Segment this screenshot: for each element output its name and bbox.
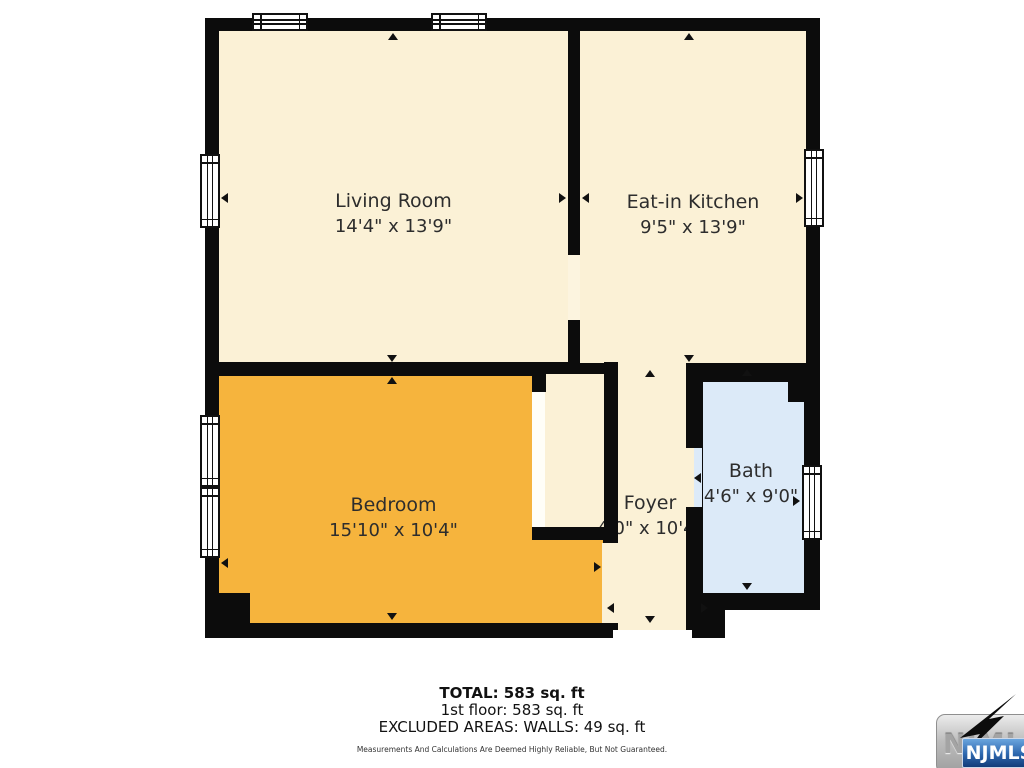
window-symbol-top-1 (252, 13, 308, 31)
foyer-entry-gap (613, 630, 692, 640)
njmls-badge-text: NJMLS (966, 742, 1024, 764)
dim-arrow-kitchen-up (684, 33, 694, 40)
dim-arrow-kitchen-right (796, 193, 803, 203)
dim-arrow-bath-left (694, 473, 701, 483)
floorplan-page: Living Room 14'4" x 13'9" Eat-in Kitchen… (0, 0, 1024, 768)
dim-arrow-foyer-down (645, 616, 655, 623)
dim-arrow-bedroom-right (594, 562, 601, 572)
kitchen-dims: 9'5" x 13'9" (580, 215, 806, 241)
closet-left-stub-wall (532, 368, 546, 392)
njmls-badge: NJMLS (962, 738, 1024, 768)
dim-arrow-living-right (559, 193, 566, 203)
living-room-dims: 14'4" x 13'9" (219, 214, 568, 240)
dim-arrow-kitchen-down (684, 355, 694, 362)
bath-name: Bath (690, 458, 812, 484)
dim-arrow-foyer-left (607, 603, 614, 613)
living-room-label: Living Room 14'4" x 13'9" (219, 188, 568, 240)
living-room-name: Living Room (219, 188, 568, 214)
excluded-areas-text: EXCLUDED AREAS: WALLS: 49 sq. ft (0, 719, 1024, 736)
dim-arrow-foyer-right (701, 603, 708, 613)
total-area-text: TOTAL: 583 sq. ft (0, 684, 1024, 702)
dim-arrow-kitchen-left (582, 193, 589, 203)
first-floor-text: 1st floor: 583 sq. ft (0, 702, 1024, 719)
window-symbol-bedroom-left-1 (200, 415, 220, 487)
dim-arrow-bath-down (742, 583, 752, 590)
window-symbol-top-2 (431, 13, 487, 31)
bath-corner-notch (788, 382, 804, 402)
bedroom-label: Bedroom 15'10" x 10'4" (219, 492, 568, 544)
bedroom-dims: 15'10" x 10'4" (219, 518, 568, 544)
window-symbol-bedroom-left-2 (200, 487, 220, 558)
disclaimer-text: Measurements And Calculations Are Deemed… (0, 745, 1024, 754)
kitchen-label: Eat-in Kitchen 9'5" x 13'9" (580, 189, 806, 241)
dim-arrow-bath-up (742, 369, 752, 376)
bedroom-name: Bedroom (219, 492, 568, 518)
closet-right-wall (604, 362, 618, 540)
dim-arrow-bedroom-up (387, 377, 397, 384)
dim-arrow-foyer-up (645, 370, 655, 377)
window-symbol-living-left (200, 154, 220, 228)
dim-arrow-bedroom-down (387, 613, 397, 620)
dim-arrow-living-down (387, 355, 397, 362)
summary-block: TOTAL: 583 sq. ft 1st floor: 583 sq. ft … (0, 684, 1024, 754)
dim-arrow-living-up (388, 33, 398, 40)
living-kitchen-doorway (568, 255, 580, 320)
window-symbol-kitchen-right (804, 149, 824, 227)
dim-arrow-bedroom-left (221, 558, 228, 568)
dim-arrow-living-left (221, 193, 228, 203)
kitchen-name: Eat-in Kitchen (580, 189, 806, 215)
dim-arrow-bath-right (793, 496, 800, 506)
bedroom-corner-notch (205, 593, 250, 637)
